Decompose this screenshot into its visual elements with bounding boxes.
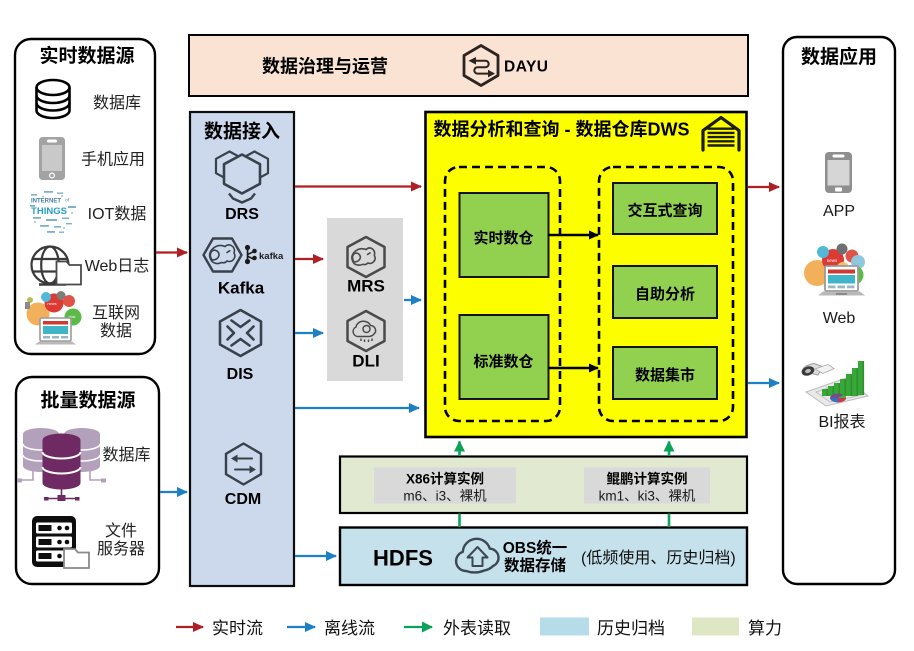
- svg-text:手机应用: 手机应用: [81, 146, 145, 170]
- svg-text:DLI: DLI: [352, 347, 379, 372]
- svg-text:数据库: 数据库: [102, 441, 150, 465]
- svg-text:服务器: 服务器: [97, 535, 145, 559]
- svg-text:算力: 算力: [748, 614, 782, 639]
- svg-text:数据接入: 数据接入: [204, 117, 280, 144]
- svg-text:HDFS: HDFS: [373, 541, 433, 573]
- svg-text:批量数据源: 批量数据源: [40, 386, 135, 413]
- svg-text:数据分析和查询 - 数据仓库DWS: 数据分析和查询 - 数据仓库DWS: [434, 116, 690, 142]
- svg-text:Web日志: Web日志: [85, 252, 150, 276]
- svg-text:IOT数据: IOT数据: [88, 200, 147, 224]
- svg-text:m6、i3、裸机: m6、i3、裸机: [403, 485, 487, 505]
- svg-text:交互式查询: 交互式查询: [627, 200, 702, 221]
- svg-text:Web: Web: [823, 304, 856, 328]
- svg-text:news: news: [47, 301, 56, 307]
- svg-text:实时数仓: 实时数仓: [473, 227, 533, 248]
- svg-text:实时数据源: 实时数据源: [39, 41, 134, 68]
- svg-text:MRS: MRS: [347, 272, 385, 297]
- svg-text:DAYU: DAYU: [504, 55, 549, 77]
- svg-text:数据存储: 数据存储: [504, 554, 566, 576]
- svg-text:(低频使用、历史归档): (低频使用、历史归档): [581, 544, 736, 568]
- svg-text:外表读取: 外表读取: [443, 614, 511, 639]
- svg-text:APP: APP: [823, 197, 855, 221]
- svg-text:数据库: 数据库: [93, 89, 141, 113]
- svg-text:Kafka: Kafka: [218, 274, 265, 299]
- svg-text:离线流: 离线流: [324, 614, 375, 639]
- svg-text:数据: 数据: [100, 317, 132, 341]
- svg-text:数据集市: 数据集市: [635, 364, 695, 385]
- svg-text:DRS: DRS: [225, 200, 259, 224]
- svg-text:km1、ki3、裸机: km1、ki3、裸机: [599, 485, 696, 505]
- svg-text:自助分析: 自助分析: [635, 283, 695, 304]
- svg-text:实时流: 实时流: [212, 614, 263, 639]
- svg-text:数据治理与运营: 数据治理与运营: [262, 53, 388, 79]
- svg-text:news: news: [827, 258, 838, 264]
- svg-text:数据应用: 数据应用: [801, 42, 877, 69]
- svg-text:BI报表: BI报表: [818, 408, 865, 432]
- svg-text:标准数仓: 标准数仓: [473, 351, 533, 372]
- svg-text:历史归档: 历史归档: [597, 614, 665, 639]
- svg-text:THINGS: THINGS: [31, 203, 67, 217]
- svg-text:kafka: kafka: [259, 248, 284, 262]
- svg-text:CDM: CDM: [225, 485, 261, 509]
- svg-text:DIS: DIS: [227, 360, 254, 384]
